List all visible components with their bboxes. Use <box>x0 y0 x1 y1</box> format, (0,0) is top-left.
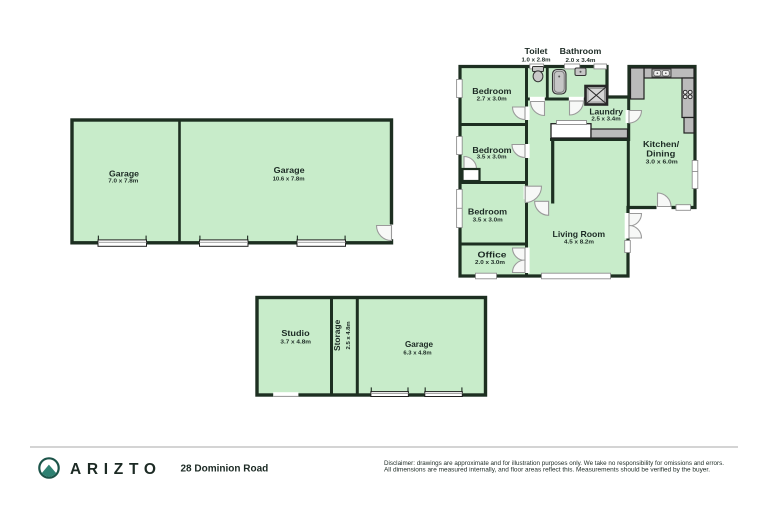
svg-text:2.0 x 3.4m: 2.0 x 3.4m <box>566 58 596 64</box>
svg-text:Storage: Storage <box>332 319 342 351</box>
svg-text:Studio: Studio <box>281 328 309 338</box>
svg-text:3.7 x 4.8m: 3.7 x 4.8m <box>280 340 311 346</box>
svg-text:7.0 x 7.8m: 7.0 x 7.8m <box>108 179 138 185</box>
svg-text:ARIZTO: ARIZTO <box>70 461 162 478</box>
svg-text:2.7 x 3.0m: 2.7 x 3.0m <box>477 97 507 103</box>
svg-text:2.5 x 4.8m: 2.5 x 4.8m <box>346 321 352 349</box>
svg-text:Laundry: Laundry <box>589 106 623 116</box>
svg-text:Garage: Garage <box>405 339 433 349</box>
svg-text:4.5 x 8.2m: 4.5 x 8.2m <box>564 239 594 245</box>
svg-text:28 Dominion Road: 28 Dominion Road <box>181 464 269 475</box>
svg-text:3.5 x 3.0m: 3.5 x 3.0m <box>477 155 507 161</box>
svg-text:3.0 x 6.0m: 3.0 x 6.0m <box>646 160 678 166</box>
svg-text:Bedroom: Bedroom <box>472 145 511 155</box>
svg-text:All dimensions are measured in: All dimensions are measured internally, … <box>384 466 710 473</box>
svg-text:Garage: Garage <box>274 165 305 175</box>
svg-text:2.5 x 3.4m: 2.5 x 3.4m <box>591 117 620 123</box>
svg-text:1.0 x 2.8m: 1.0 x 2.8m <box>522 58 551 64</box>
svg-text:10.6 x 7.8m: 10.6 x 7.8m <box>273 176 305 182</box>
svg-text:Bathroom: Bathroom <box>560 46 602 56</box>
svg-text:Bedroom: Bedroom <box>468 207 507 217</box>
svg-text:Garage: Garage <box>109 168 139 178</box>
svg-text:Living Room: Living Room <box>553 229 606 239</box>
svg-text:Toilet: Toilet <box>525 46 548 56</box>
svg-text:Kitchen/: Kitchen/ <box>643 139 680 149</box>
svg-text:Dining: Dining <box>646 148 675 158</box>
svg-text:Bedroom: Bedroom <box>472 86 511 96</box>
svg-text:Office: Office <box>478 250 507 260</box>
svg-text:3.5 x 3.0m: 3.5 x 3.0m <box>473 218 503 224</box>
svg-text:6.3 x 4.8m: 6.3 x 4.8m <box>403 351 431 357</box>
svg-text:2.0 x 3.0m: 2.0 x 3.0m <box>475 260 505 266</box>
